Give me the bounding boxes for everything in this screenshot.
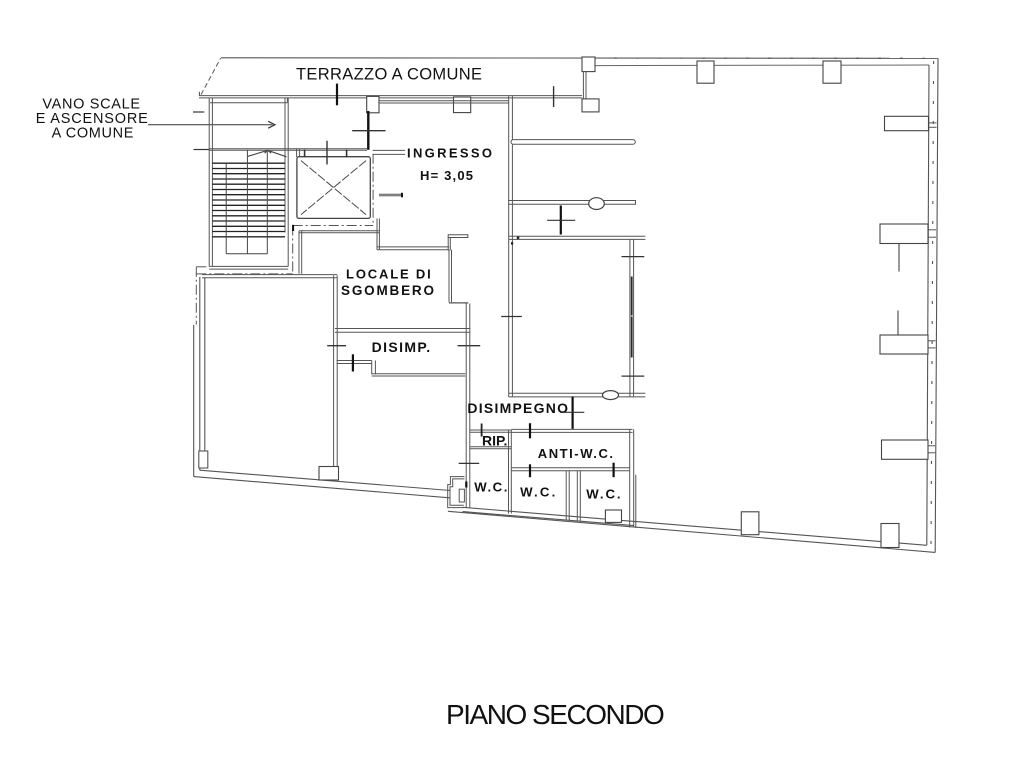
svg-text:DISIMPEGNO: DISIMPEGNO	[467, 400, 568, 416]
svg-text:DISIMP.: DISIMP.	[372, 339, 431, 355]
svg-text:SGOMBERO: SGOMBERO	[341, 283, 434, 298]
svg-text:ANTI-W.C.: ANTI-W.C.	[538, 446, 613, 461]
svg-text:PIANO SECONDO: PIANO SECONDO	[446, 699, 665, 730]
svg-text:H= 3,05: H= 3,05	[420, 168, 473, 183]
svg-text:A COMUNE: A COMUNE	[52, 126, 134, 142]
svg-text:INGRESSO: INGRESSO	[407, 146, 492, 161]
svg-text:RIP.: RIP.	[482, 433, 507, 449]
svg-text:TERRAZZO A COMUNE: TERRAZZO A COMUNE	[296, 66, 482, 84]
